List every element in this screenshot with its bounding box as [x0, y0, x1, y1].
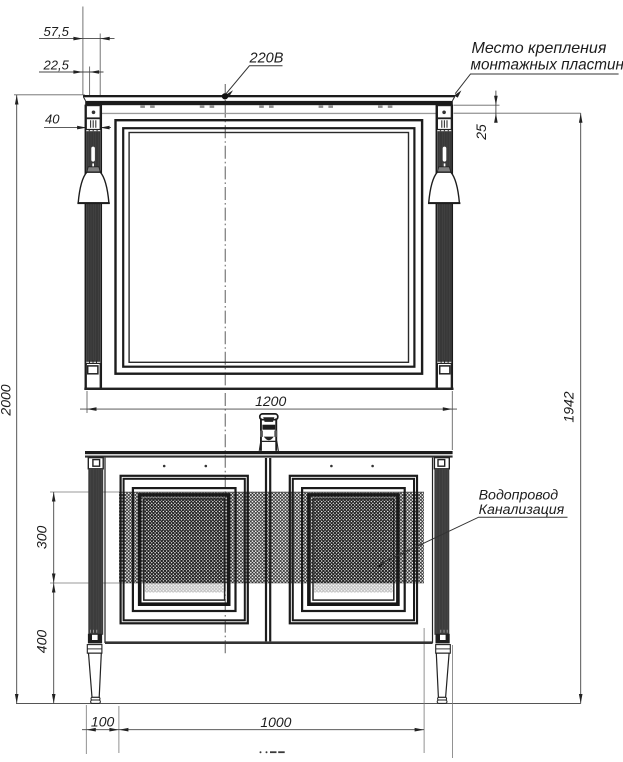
svg-text:2000: 2000: [0, 384, 13, 416]
svg-text:Канализация: Канализация: [479, 502, 565, 518]
svg-text:100: 100: [91, 714, 115, 730]
svg-text:40: 40: [45, 112, 60, 127]
svg-text:1942: 1942: [561, 391, 577, 422]
svg-text:57,5: 57,5: [44, 24, 70, 39]
svg-text:22,5: 22,5: [43, 58, 70, 73]
svg-text:220В: 220В: [249, 51, 284, 67]
svg-text:Место крепления: Место крепления: [472, 40, 607, 57]
svg-text:монтажных пластин: монтажных пластин: [471, 56, 623, 73]
svg-text:1000: 1000: [260, 714, 291, 730]
svg-text:25: 25: [473, 124, 489, 141]
svg-text:300: 300: [34, 526, 50, 550]
svg-text:1200: 1200: [255, 393, 286, 409]
svg-text:400: 400: [34, 630, 50, 654]
